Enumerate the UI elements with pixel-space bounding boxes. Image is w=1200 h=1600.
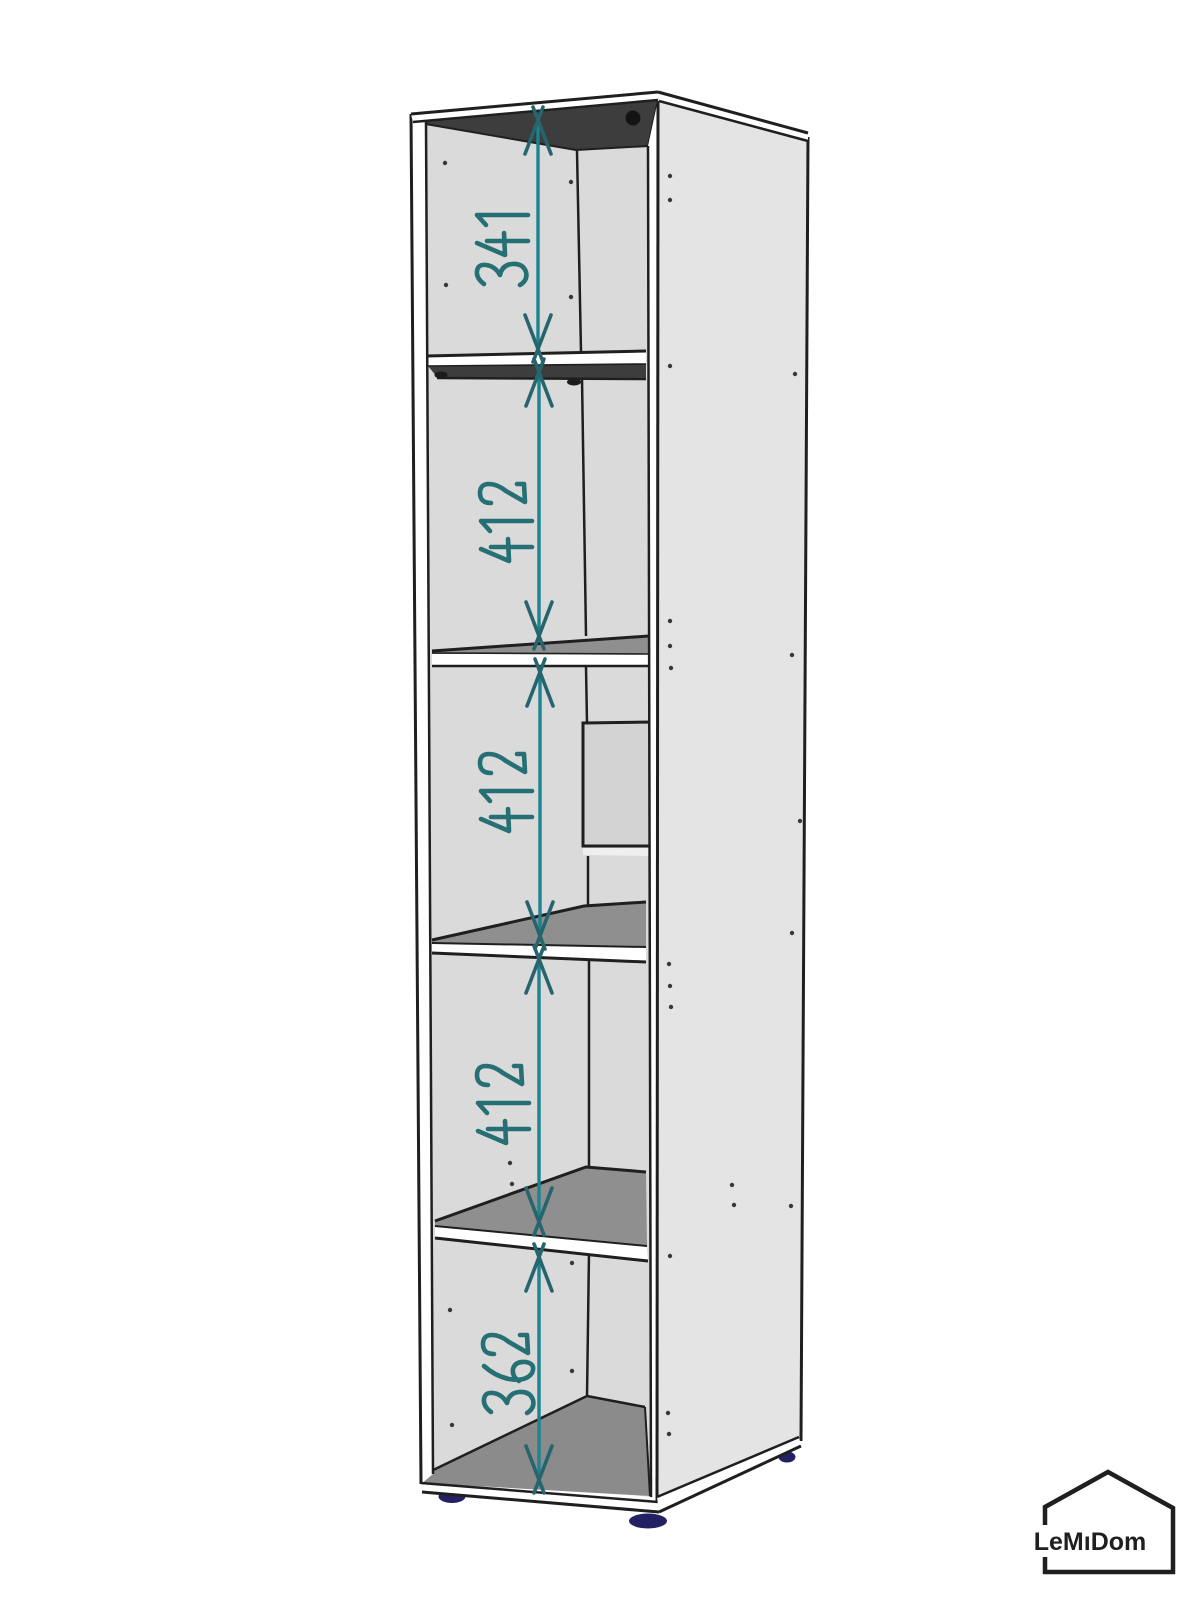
svg-text:LeMıDom: LeMıDom bbox=[1034, 1528, 1147, 1556]
